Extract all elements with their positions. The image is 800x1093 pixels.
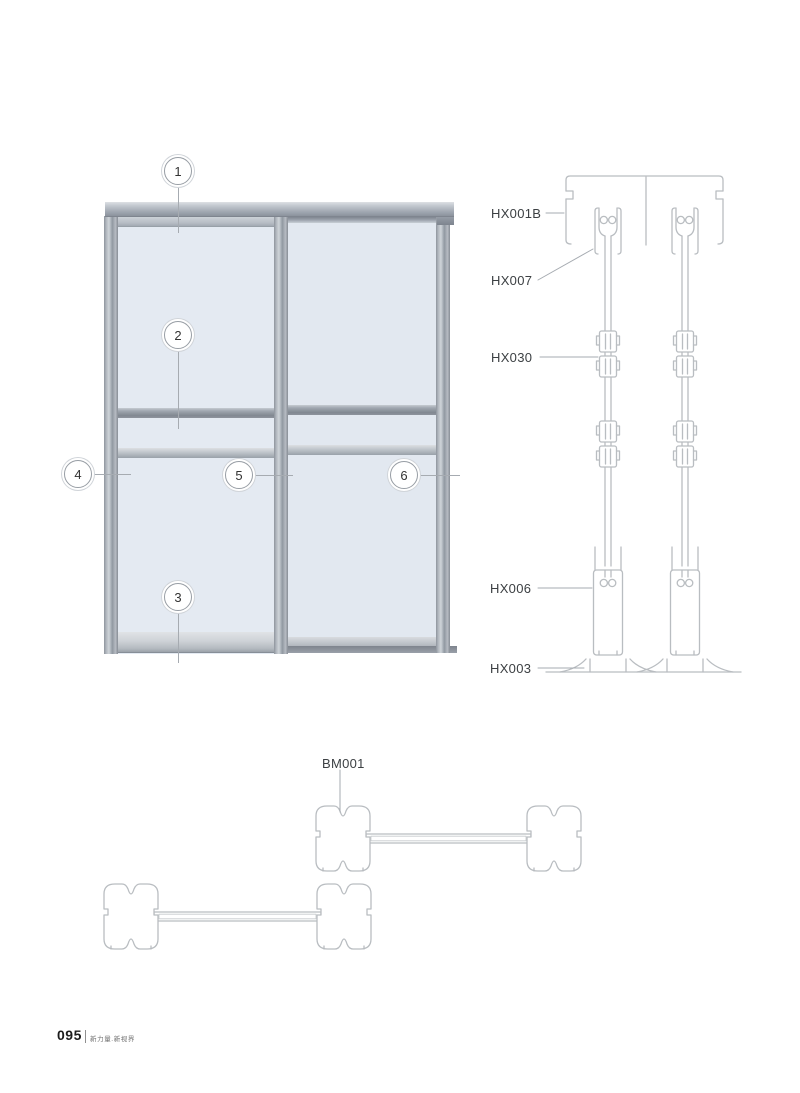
top-track-profile: [566, 176, 723, 245]
label-hx003: HX003: [490, 661, 531, 676]
mid-rail-dark-right: [284, 405, 450, 415]
leader-line-5: [253, 475, 293, 476]
bottom-track-ramps: [560, 659, 656, 672]
label-hx006: HX006: [490, 581, 531, 596]
top-track-end-cap: [437, 217, 454, 225]
footer-divider: [85, 1030, 86, 1043]
callout-5-label: 5: [235, 468, 242, 483]
leader-line-3: [178, 611, 179, 663]
panel-section-right: [671, 208, 700, 655]
top-rail-left: [104, 216, 288, 227]
bottom-rail-left: [104, 632, 288, 653]
stile-profile: [317, 884, 371, 949]
right-stile: [436, 216, 450, 653]
door-leaf-left: [104, 216, 288, 654]
label-hx007: HX007: [491, 273, 532, 288]
callout-4-label: 4: [74, 467, 81, 482]
callout-4: 4: [64, 460, 92, 488]
top-track: [105, 202, 454, 217]
label-hx001b: HX001B: [491, 206, 541, 221]
callout-5: 5: [225, 461, 253, 489]
sliding-door-elevation: [101, 202, 455, 668]
leader-line-2: [178, 349, 179, 429]
catalog-page: 1 2 3 4 5 6: [0, 0, 800, 1093]
panel-bar: [154, 912, 321, 921]
vertical-section-drawing: [460, 160, 770, 690]
track-outer: [566, 176, 723, 244]
bottom-base-band: [284, 646, 457, 653]
section-leader-lines: [538, 213, 598, 668]
left-stile: [104, 216, 118, 654]
horizontal-section-drawing: [90, 745, 700, 960]
page-number: 095: [57, 1027, 82, 1043]
label-bm001: BM001: [322, 756, 365, 771]
callout-1: 1: [164, 157, 192, 185]
stile-profile: [104, 884, 158, 949]
track-hooks: [566, 191, 723, 199]
leader-line-1: [178, 185, 179, 233]
stile-profile: [316, 806, 370, 871]
middle-stile: [274, 216, 288, 654]
mid-rail-dark-left: [104, 408, 288, 418]
leader-line-4: [92, 474, 131, 475]
callout-2: 2: [164, 321, 192, 349]
label-hx030: HX030: [491, 350, 532, 365]
track-shadow: [284, 216, 450, 223]
callout-6-label: 6: [400, 468, 407, 483]
bottom-track-profile: [546, 659, 741, 672]
callout-3-label: 3: [174, 590, 181, 605]
mid-rail-light-right: [284, 445, 450, 455]
door-leaf-right: [284, 216, 450, 653]
callout-3: 3: [164, 583, 192, 611]
callout-1-label: 1: [174, 164, 181, 179]
plan-section-front-leaf: [104, 884, 371, 949]
panel-section-left: [594, 208, 623, 655]
mid-rail-light-left: [104, 448, 288, 458]
leader-hx007: [538, 249, 593, 280]
footer-tagline: 新力量.新视界: [90, 1033, 135, 1043]
callout-2-label: 2: [174, 328, 181, 343]
stile-profile: [527, 806, 581, 871]
bottom-track-ramps: [637, 659, 733, 672]
callout-6: 6: [390, 461, 418, 489]
plan-section-rear-leaf: [316, 806, 581, 871]
leader-line-6: [418, 475, 460, 476]
panel-bar: [366, 834, 531, 843]
